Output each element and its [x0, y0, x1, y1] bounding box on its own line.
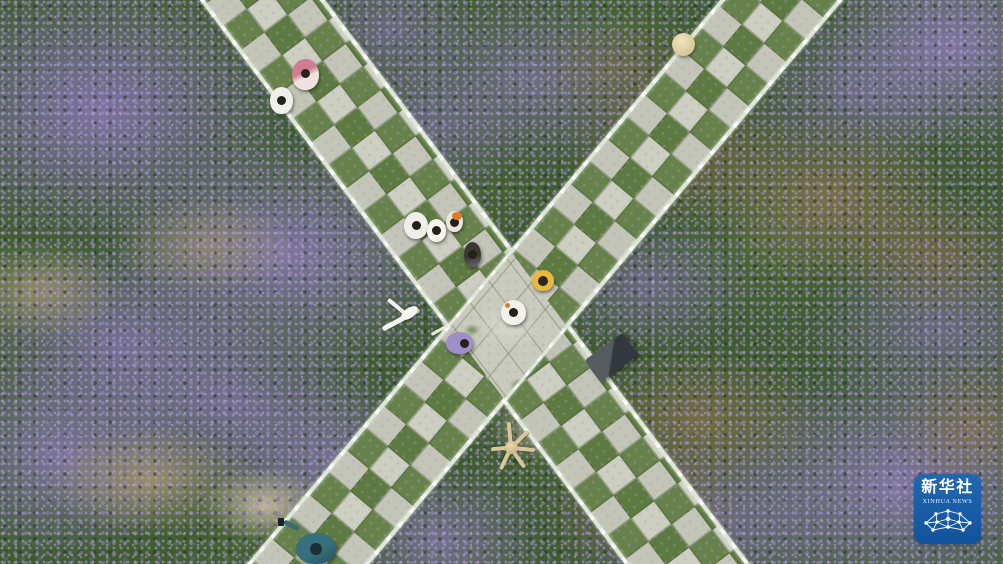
- straw-hat-disc: [672, 33, 695, 56]
- person-white-top: [404, 212, 428, 239]
- person-dark-top: [464, 242, 481, 267]
- aerial-photograph: 新华社 XINHUA NEWS: [0, 0, 1003, 564]
- orange-item: [452, 212, 462, 220]
- person-white-top: [270, 87, 293, 114]
- white-glider: [378, 300, 430, 344]
- wooden-pinwheel: [485, 422, 537, 474]
- person-pink-top: [292, 59, 319, 90]
- phone: [278, 518, 284, 526]
- person-yellow-hat: [532, 270, 554, 291]
- person-white-top: [427, 219, 446, 242]
- network-globe-icon: [921, 508, 975, 534]
- orange-item: [505, 303, 510, 308]
- person-purple-top: [446, 332, 473, 354]
- xinhua-en-text: XINHUA NEWS: [923, 498, 973, 505]
- xinhua-cn-text: 新华社: [921, 479, 974, 497]
- person-teal-jacket: [296, 533, 336, 564]
- xinhua-watermark: 新华社 XINHUA NEWS: [914, 474, 981, 544]
